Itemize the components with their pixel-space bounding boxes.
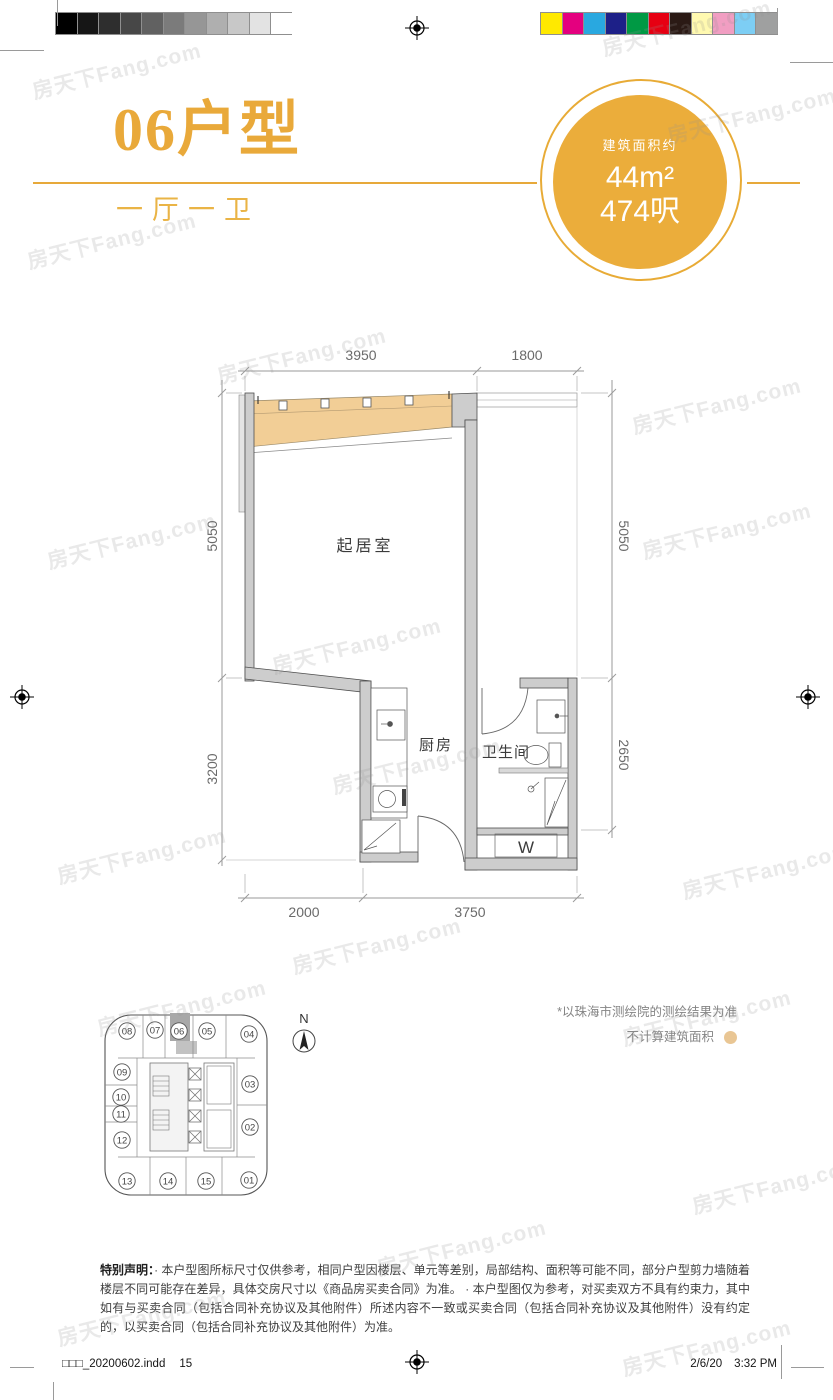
- gray-swatch: [227, 13, 249, 34]
- svg-text:04: 04: [244, 1029, 255, 1040]
- keyplan-unit-12: 12: [114, 1132, 130, 1148]
- dim-3950: 3950: [345, 347, 376, 363]
- color-swatch: [755, 13, 777, 34]
- area-m2: 44m²: [606, 161, 674, 196]
- circle-right-line: [747, 182, 800, 184]
- crop-mark: [790, 62, 833, 63]
- page-title: 06户型: [113, 100, 301, 160]
- color-swatch: [605, 13, 627, 34]
- entry-door-swing: [418, 816, 464, 862]
- survey-note: *以珠海市测绘院的测绘结果为准: [557, 1006, 737, 1019]
- title-underline: [33, 182, 537, 184]
- north-label: N: [299, 1011, 308, 1026]
- gray-swatch: [163, 13, 185, 34]
- disclaimer: 特别声明：· 本户型图所标尺寸仅供参考，相同户型因楼层、单元等差别，局部结构、面…: [100, 1261, 750, 1337]
- dim-5050-right: 5050: [616, 520, 632, 551]
- bath-door-swing: [482, 688, 528, 734]
- gray-swatch: [206, 13, 228, 34]
- color-swatch: [734, 13, 756, 34]
- keyplan-unit-13: 13: [119, 1173, 135, 1189]
- gray-swatch: [56, 13, 77, 34]
- color-swatch: [648, 13, 670, 34]
- svg-text:09: 09: [117, 1067, 128, 1078]
- dim-2000: 2000: [288, 904, 319, 920]
- survey-notes: *以珠海市测绘院的测绘结果为准 不计算建筑面积: [557, 1006, 737, 1044]
- gray-swatch: [120, 13, 142, 34]
- walls: [239, 393, 577, 870]
- svg-text:05: 05: [202, 1026, 213, 1037]
- label-kitchen: 厨房: [419, 737, 453, 754]
- keyplan-unit-15: 15: [198, 1173, 214, 1189]
- svg-text:01: 01: [244, 1175, 255, 1186]
- gray-swatch: [98, 13, 120, 34]
- registration-mark-icon: [795, 684, 821, 710]
- keyplan-unit-06: 06: [171, 1023, 187, 1039]
- registration-mark-icon: [404, 1349, 430, 1375]
- keyplan-unit-01: 01: [241, 1172, 257, 1188]
- layout-subtitle: 一厅一卫: [116, 197, 260, 224]
- gray-swatch: [77, 13, 99, 34]
- svg-text:06: 06: [174, 1026, 185, 1037]
- registration-mark-icon: [9, 684, 35, 710]
- footer-time: 3:32 PM: [734, 1358, 777, 1370]
- footer-filename: □□□_20200602.indd: [62, 1358, 165, 1370]
- svg-text:14: 14: [163, 1176, 174, 1187]
- color-swatch: [626, 13, 648, 34]
- keyplan-unit-14: 14: [160, 1173, 176, 1189]
- keyplan-unit-04: 04: [241, 1026, 257, 1042]
- keyplan-unit-09: 09: [114, 1064, 130, 1080]
- area-label: 建筑面积约: [602, 135, 677, 154]
- label-living-room: 起居室: [336, 537, 393, 555]
- gray-swatch: [141, 13, 163, 34]
- keyplan-unit-10: 10: [113, 1089, 129, 1105]
- keyplan-unit-02: 02: [242, 1119, 258, 1135]
- dim-2650: 2650: [616, 739, 632, 770]
- north-arrow: N: [293, 1011, 315, 1052]
- color-swatch: [691, 13, 713, 34]
- keyplan-core: [150, 1063, 234, 1151]
- area-badge: 建筑面积约 44m² 474呎: [553, 95, 727, 269]
- elevator-icons: [189, 1068, 201, 1143]
- color-swatch: [541, 13, 562, 34]
- registration-mark-icon: [404, 15, 430, 41]
- bath-sink: [537, 700, 565, 733]
- disclaimer-text: · 本户型图所标尺寸仅供参考，相同户型因楼层、单元等差别，局部结构、面积等可能不…: [100, 1263, 750, 1334]
- keyplan-unit-08: 08: [119, 1023, 135, 1039]
- grayscale-calibration-bar: [55, 12, 292, 35]
- disclaimer-label: 特别声明：: [100, 1263, 154, 1277]
- gray-swatch: [249, 13, 271, 34]
- exclude-area-note: 不计算建筑面积: [626, 1031, 714, 1044]
- dim-3750: 3750: [454, 904, 485, 920]
- crop-mark: [791, 1367, 824, 1368]
- label-washer: W: [518, 838, 534, 857]
- crop-mark: [777, 8, 778, 34]
- color-swatch: [712, 13, 734, 34]
- watermark: 房天下Fang.com: [639, 494, 814, 565]
- toilet-tank: [549, 743, 561, 767]
- keyplan-unit-07: 07: [147, 1022, 163, 1038]
- color-swatch: [562, 13, 584, 34]
- dim-5050-left: 5050: [204, 520, 220, 551]
- footer-page-number: 15: [179, 1358, 192, 1370]
- watermark: 房天下Fang.com: [29, 34, 204, 105]
- building-key-plan: 080706050409101112030213141501 N: [88, 1002, 320, 1207]
- gray-swatch: [270, 13, 292, 34]
- keyplan-unit-11: 11: [113, 1106, 129, 1122]
- color-swatch: [669, 13, 691, 34]
- svg-text:03: 03: [245, 1079, 256, 1090]
- kitchen-faucet-icon: [388, 722, 393, 727]
- svg-text:08: 08: [122, 1026, 133, 1037]
- svg-text:11: 11: [116, 1109, 126, 1120]
- floor-plan: 3950 1800 5050 3200 5050 2650 2000 3750: [185, 330, 645, 960]
- crop-mark: [10, 1367, 34, 1368]
- svg-text:15: 15: [201, 1176, 212, 1187]
- svg-text:07: 07: [150, 1025, 161, 1036]
- svg-text:02: 02: [245, 1122, 256, 1133]
- keyplan-highlight-06: [176, 1041, 197, 1054]
- dim-3200: 3200: [204, 753, 220, 784]
- area-ft: 474呎: [600, 195, 680, 230]
- crop-mark: [53, 1382, 54, 1400]
- footer-datetime: 2/6/203:32 PM: [690, 1358, 777, 1370]
- dim-1800: 1800: [511, 347, 542, 363]
- svg-text:13: 13: [122, 1176, 133, 1187]
- keyplan-unit-03: 03: [242, 1076, 258, 1092]
- cooktop: [373, 786, 407, 812]
- watermark: 房天下Fang.com: [679, 834, 833, 905]
- gray-swatch: [184, 13, 206, 34]
- svg-text:10: 10: [116, 1092, 127, 1103]
- color-swatch: [583, 13, 605, 34]
- color-calibration-bar: [540, 12, 778, 35]
- brochure-page: 06户型 一厅一卫 建筑面积约 44m² 474呎 3950 1800 5050: [0, 0, 833, 1400]
- watermark: 房天下Fang.com: [689, 1149, 833, 1220]
- tan-legend-dot-icon: [724, 1031, 737, 1044]
- keyplan-unit-05: 05: [199, 1023, 215, 1039]
- balcony-ledge: [477, 393, 577, 676]
- crop-mark: [0, 50, 44, 51]
- kitchen-flue-shaft: [362, 820, 400, 853]
- crop-mark: [57, 0, 58, 26]
- curtain-wall-band: [247, 391, 452, 453]
- footer-file-info: □□□_20200602.indd15: [62, 1358, 192, 1370]
- svg-text:12: 12: [117, 1135, 128, 1146]
- label-bathroom: 卫生间: [482, 744, 530, 761]
- watermark: 房天下Fang.com: [629, 369, 804, 440]
- crop-mark: [781, 1345, 782, 1379]
- footer-date: 2/6/20: [690, 1358, 722, 1370]
